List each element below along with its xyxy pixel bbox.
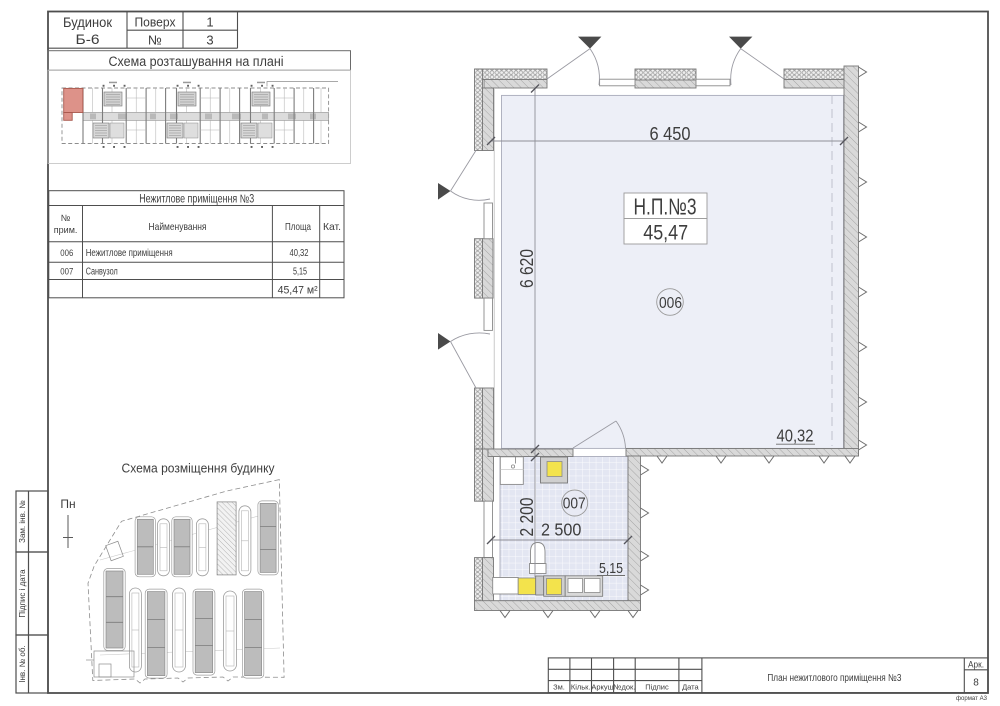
svg-text:прим.: прим. [54,225,78,235]
svg-text:Арк.: Арк. [968,660,984,670]
svg-text:Нежитлове приміщення №3: Нежитлове приміщення №3 [139,194,254,206]
svg-text:2 500: 2 500 [541,520,582,540]
svg-text:3: 3 [206,33,213,48]
svg-text:Зм.: Зм. [553,683,565,692]
svg-text:2 200: 2 200 [517,498,537,537]
svg-text:40,32: 40,32 [777,426,814,446]
svg-text:Пн: Пн [60,497,75,511]
svg-text:45,47: 45,47 [643,222,688,245]
svg-text:Дата: Дата [682,683,699,692]
svg-text:45,47 м²: 45,47 м² [278,285,318,297]
svg-text:Б-6: Б-6 [76,31,100,47]
svg-text:Кільк.: Кільк. [571,683,591,692]
svg-text:006: 006 [60,248,73,259]
svg-text:Санвузол: Санвузол [86,267,118,278]
svg-text:Будинок: Будинок [63,14,113,30]
svg-text:План нежитлового приміщення №3: План нежитлового приміщення №3 [767,673,901,684]
svg-text:8: 8 [973,678,979,689]
svg-text:Площа: Площа [285,221,311,233]
svg-text:007: 007 [60,267,73,278]
svg-text:40,32: 40,32 [290,248,309,259]
svg-text:Н.П.№3: Н.П.№3 [634,194,697,220]
svg-text:Схема розташування на плані: Схема розташування на плані [109,54,284,69]
svg-text:Схема розміщення будинку: Схема розміщення будинку [122,461,275,476]
svg-text:Аркуш: Аркуш [591,683,613,692]
svg-text:Кат.: Кат. [323,221,341,233]
svg-text:Інв. № об.: Інв. № об. [18,645,27,682]
svg-text:Підпис і дата: Підпис і дата [18,569,27,618]
svg-text:6 450: 6 450 [650,124,691,144]
svg-text:006: 006 [659,295,682,312]
svg-text:1: 1 [206,15,213,30]
svg-text:№: № [148,33,162,48]
svg-text:№док.: №док. [613,683,635,692]
svg-text:5,15: 5,15 [293,267,307,278]
svg-text:007: 007 [563,496,586,513]
svg-text:Підпис: Підпис [645,683,669,692]
svg-text:формат А3: формат А3 [956,695,987,702]
svg-text:Нежитлове приміщення: Нежитлове приміщення [86,248,173,259]
svg-text:Зам. інв. №: Зам. інв. № [18,500,27,543]
svg-text:6 620: 6 620 [517,249,537,288]
svg-text:5,15: 5,15 [599,560,623,577]
svg-text:Поверх: Поверх [135,15,176,30]
svg-text:№: № [61,213,71,223]
svg-text:Найменування: Найменування [149,221,207,233]
